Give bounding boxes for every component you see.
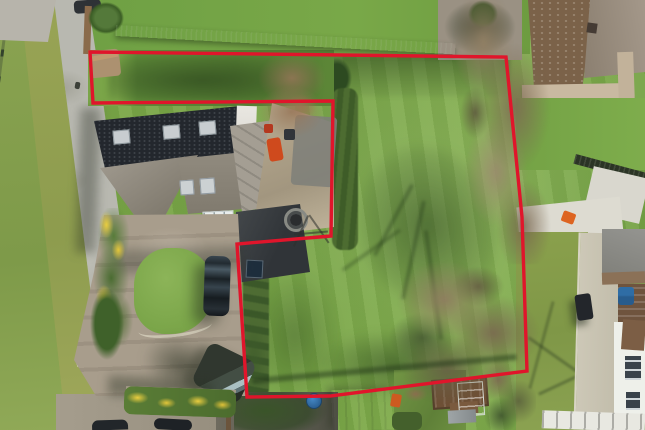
outbuilding-fascia — [602, 271, 645, 284]
dark-item — [284, 129, 295, 140]
skylight — [179, 180, 194, 196]
neighbour-house-roof-light — [584, 0, 645, 80]
partial-car — [154, 418, 193, 430]
ride-on-mower — [574, 293, 593, 321]
window — [626, 392, 640, 410]
blue-wheelie-bins — [618, 287, 634, 305]
skylight — [199, 177, 215, 194]
tall-bush — [90, 288, 124, 360]
bare-tree-bottom-cluster — [385, 245, 540, 405]
boundary-hedge — [332, 88, 358, 250]
blue-water-butt — [306, 393, 322, 409]
chimney — [586, 22, 597, 33]
red-item — [264, 124, 273, 133]
garden-hedge — [392, 412, 422, 430]
garden-bench — [448, 409, 477, 423]
window — [625, 356, 641, 380]
skylight — [112, 129, 130, 144]
skylight — [162, 124, 180, 139]
aerial-photo — [0, 0, 645, 430]
garage-roof-window — [246, 260, 264, 279]
partial-car — [92, 419, 128, 430]
bottom-white-wall — [542, 410, 645, 430]
white-house-roof-edge — [621, 319, 645, 351]
parked-car-dark — [203, 256, 231, 317]
skylight — [198, 120, 216, 135]
neighbour-retaining-wall — [617, 52, 635, 103]
bare-trees-right-boundary — [452, 0, 557, 264]
gorse-hedge-row — [124, 386, 237, 418]
bottom-hedge-dark — [234, 392, 338, 430]
